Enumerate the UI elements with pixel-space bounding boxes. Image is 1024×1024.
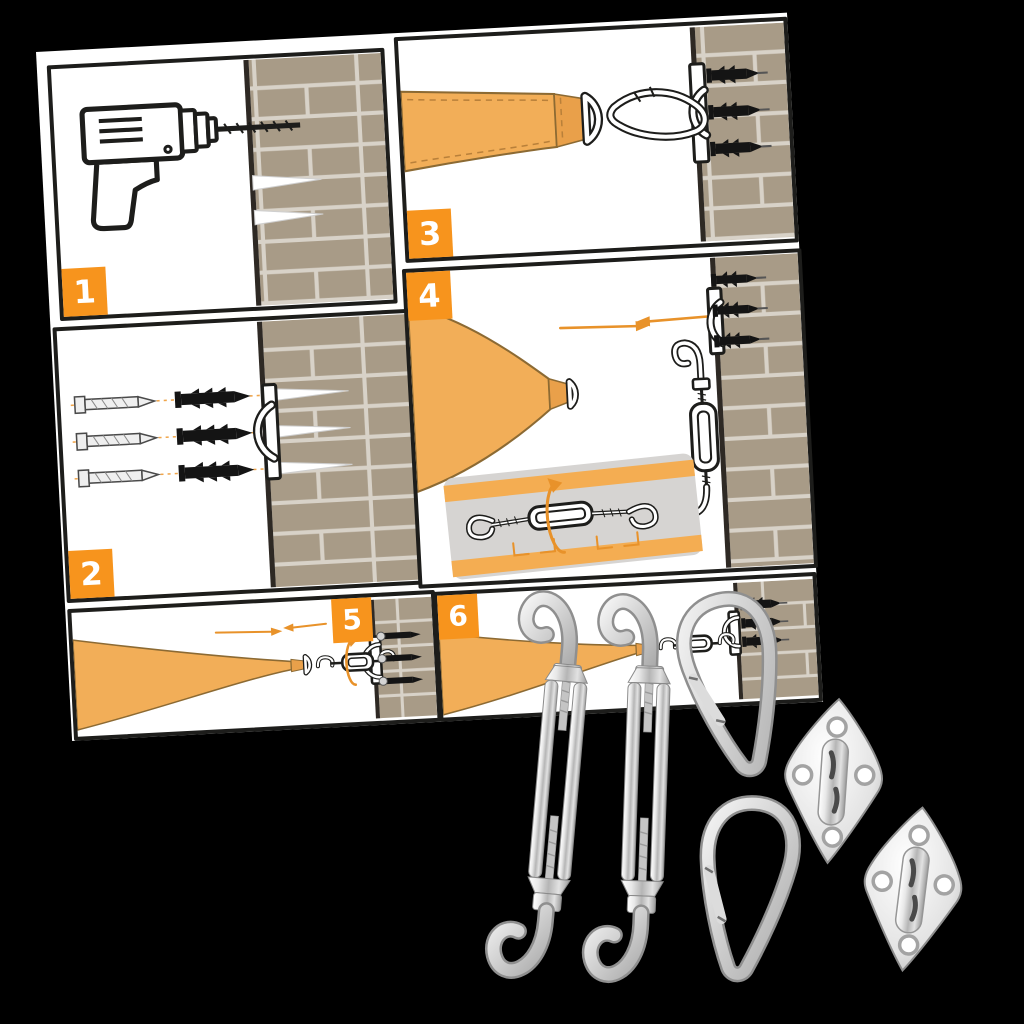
carabiner-photo [698, 800, 796, 978]
carabiner-photo [673, 591, 798, 779]
hardware-kit-photos [0, 0, 1024, 1024]
pad-eye-photo [854, 802, 970, 977]
turnbuckle-photo [590, 601, 673, 976]
black-background: 1 [0, 0, 1024, 1024]
turnbuckle-photo [492, 597, 595, 975]
